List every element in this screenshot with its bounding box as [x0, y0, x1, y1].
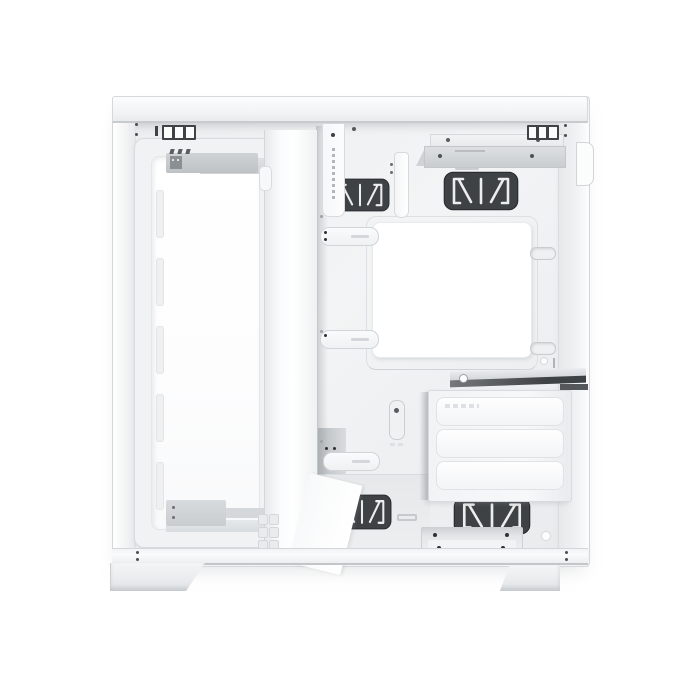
vent-slot: [397, 514, 417, 521]
tray-screw-hole: [320, 215, 323, 218]
rail-clip: [323, 452, 380, 471]
spine-clip-slot: [269, 514, 279, 525]
screw: [324, 238, 327, 241]
rail-clip-dash: [351, 235, 369, 238]
cage-shadow: [419, 392, 428, 500]
rail-clip: [320, 330, 379, 349]
vertical-slot: [389, 400, 405, 440]
screw: [565, 558, 568, 561]
rail-clip: [320, 227, 379, 246]
bottom-panel-edge: [112, 548, 588, 565]
screw: [172, 516, 175, 519]
rear-latch: [576, 142, 594, 186]
rail-clip-dash: [351, 338, 369, 341]
ssd-bracket-seam: [455, 150, 485, 152]
thumbscrew: [459, 374, 468, 383]
front-panel-edge: [112, 122, 136, 548]
fan-slot: [156, 258, 164, 306]
fan-slot: [156, 326, 164, 374]
drive-bay: [436, 461, 564, 490]
front-bracket-opening: [151, 156, 260, 530]
screw: [564, 124, 567, 127]
drive-bay: [436, 397, 564, 426]
screw: [530, 154, 534, 158]
screw: [135, 123, 138, 126]
screw: [390, 171, 393, 174]
slide-rail-bracket: [166, 153, 258, 173]
top-panel-edge: [112, 96, 588, 123]
micro-marking: [390, 443, 404, 446]
spine-clip-slot: [269, 527, 279, 538]
screw: [433, 533, 437, 537]
tray-pill-slot: [530, 342, 556, 355]
screw: [325, 447, 328, 450]
top-clip-slot: [184, 125, 196, 140]
screw: [333, 447, 336, 450]
screw: [446, 138, 450, 142]
screw: [324, 231, 327, 234]
ssd-bracket: [424, 146, 566, 168]
screw: [505, 533, 509, 537]
product-photo-pc-case: [0, 0, 700, 700]
bottom-rail-bracket: [166, 500, 226, 526]
micro-marking-vertical: [332, 148, 335, 200]
screw: [136, 558, 139, 561]
drive-bay: [436, 429, 564, 458]
spine-slot: [259, 166, 272, 191]
screw: [136, 551, 139, 554]
micro-marking: [445, 404, 479, 408]
screw: [565, 551, 568, 554]
rail-pin: [177, 159, 179, 161]
fan-slot: [156, 190, 164, 238]
cable-clip: [394, 152, 409, 218]
shroud-slot: [553, 358, 555, 368]
top-clip-slot: [547, 125, 559, 140]
screw: [135, 133, 138, 136]
screw-hole: [331, 133, 335, 137]
cpu-cutout: [372, 222, 532, 358]
screw: [564, 134, 567, 137]
screw: [394, 408, 399, 413]
spine-clip-slot: [258, 527, 268, 538]
inner-tab: [322, 124, 345, 217]
screw: [324, 334, 327, 337]
case-foot-front: [110, 563, 205, 591]
screw: [438, 154, 442, 158]
cable-grommet: [443, 171, 519, 211]
spine-clip-slot: [258, 514, 268, 525]
rail-block: [170, 156, 182, 169]
case-foot-rear: [500, 565, 560, 591]
rail-clip-dash: [352, 460, 370, 463]
thumbscrew-hole: [541, 531, 551, 541]
tray-pill-slot: [530, 247, 556, 260]
fan-slot: [156, 462, 164, 510]
top-clip-slot: [155, 126, 158, 136]
rail-pin: [172, 159, 174, 161]
screw: [172, 506, 175, 509]
screw: [390, 163, 393, 166]
fan-slot: [156, 394, 164, 442]
screw-hole: [540, 357, 548, 365]
tray-screw-hole: [320, 440, 323, 443]
screw: [352, 127, 356, 131]
